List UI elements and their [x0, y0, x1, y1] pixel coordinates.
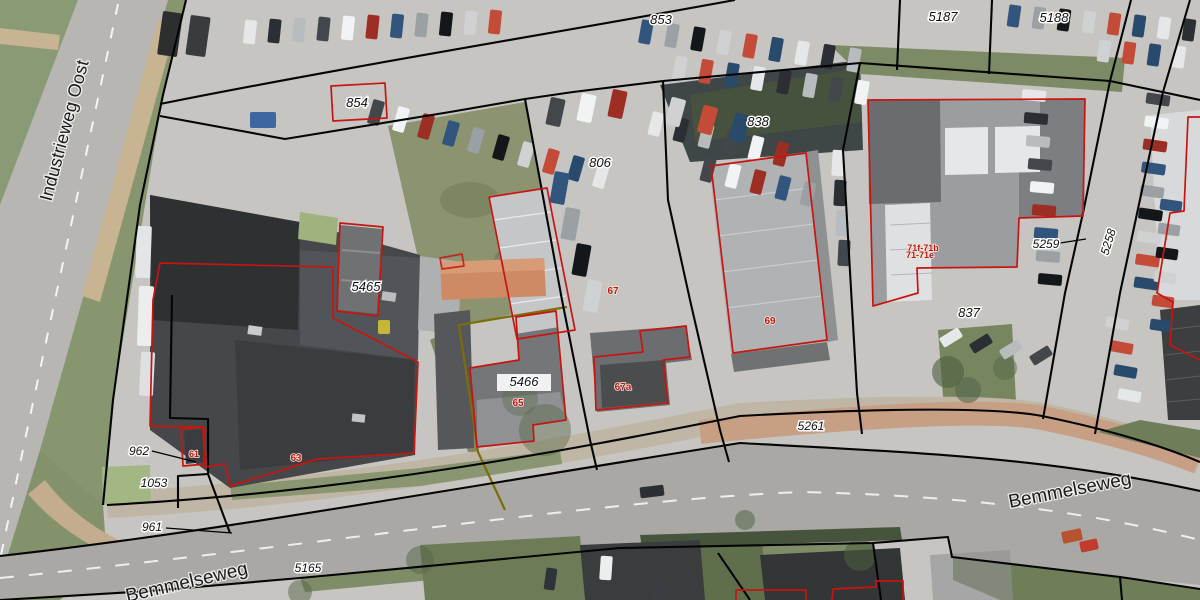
parcel-label-5465: 5465 [352, 279, 382, 294]
house-number-71-71e: 71-71e [906, 250, 934, 260]
house-number-65: 65 [512, 398, 524, 409]
parcel-label-962: 962 [129, 444, 149, 458]
house-number-67a: 67a [615, 382, 632, 393]
parcel-label-854: 854 [346, 95, 368, 110]
parcel-label-1053: 1053 [141, 476, 168, 490]
parcel-label-961: 961 [142, 520, 162, 534]
parcel-label-5187: 5187 [929, 9, 959, 24]
house-number-63: 63 [290, 453, 302, 464]
house-number-69: 69 [764, 316, 776, 327]
parcel-label-837: 837 [958, 305, 980, 320]
parcel-label-5165: 5165 [295, 561, 322, 575]
map-canvas[interactable]: 8538545187518880683854655466837526196210… [0, 0, 1200, 600]
house-number-67: 67 [607, 286, 619, 297]
parcel-label-5261: 5261 [798, 419, 825, 433]
map-viewport[interactable]: 8538545187518880683854655466837526196210… [0, 0, 1200, 600]
parcel-label-5259: 5259 [1033, 237, 1060, 251]
parcel-label-5466: 5466 [510, 374, 540, 389]
parcel-label-853: 853 [650, 12, 672, 27]
house-number-61: 61 [189, 449, 199, 459]
parcel-label-5188: 5188 [1040, 10, 1070, 25]
parcel-label-838: 838 [747, 114, 769, 129]
parcel-label-806: 806 [589, 155, 611, 170]
